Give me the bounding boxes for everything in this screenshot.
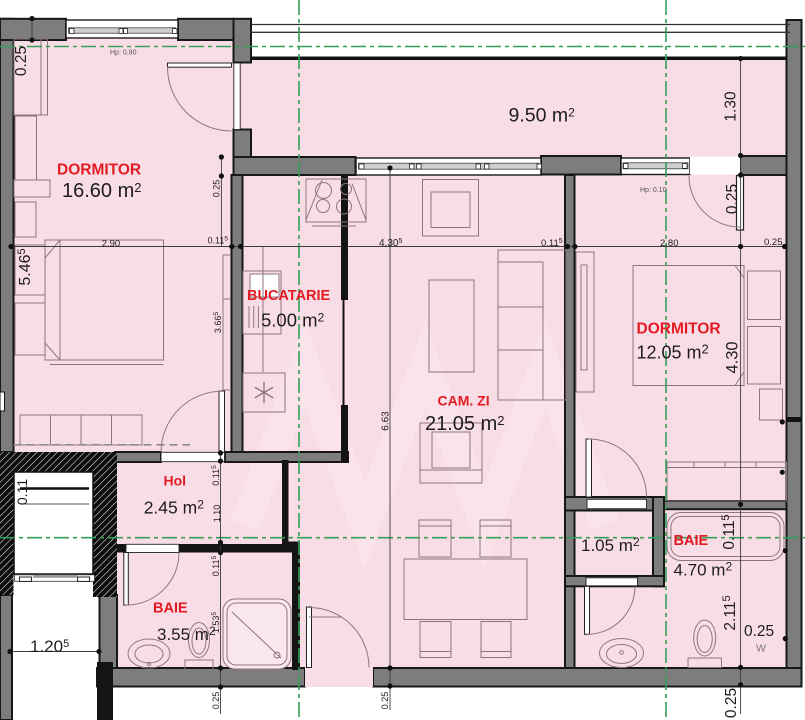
svg-text:6.63: 6.63 [381, 411, 392, 431]
svg-text:4.70 m2: 4.70 m2 [674, 560, 733, 580]
svg-text:Hp: 0.10: Hp: 0.10 [640, 187, 667, 194]
svg-text:0.25: 0.25 [212, 180, 222, 198]
svg-text:BAIE: BAIE [153, 601, 188, 617]
svg-text:BUCATARIE: BUCATARIE [247, 288, 331, 304]
svg-text:1.05 m2: 1.05 m2 [581, 535, 640, 555]
svg-text:0.25: 0.25 [211, 692, 221, 710]
svg-text:0.11: 0.11 [14, 479, 30, 505]
svg-text:DORMITOR: DORMITOR [57, 162, 141, 179]
svg-text:5.00 m2: 5.00 m2 [261, 310, 325, 331]
svg-text:0.25: 0.25 [13, 46, 30, 76]
svg-text:9.50 m2: 9.50 m2 [509, 105, 576, 127]
svg-text:1.30: 1.30 [723, 91, 740, 122]
svg-text:Hol: Hol [164, 473, 187, 489]
svg-text:12.05 m2: 12.05 m2 [637, 342, 709, 363]
svg-text:0.25: 0.25 [380, 692, 390, 710]
svg-text:21.05 m2: 21.05 m2 [425, 413, 505, 435]
svg-text:2.80: 2.80 [660, 238, 679, 249]
svg-text:CAM. ZI: CAM. ZI [438, 393, 490, 409]
svg-text:16.60 m2: 16.60 m2 [62, 180, 142, 202]
svg-text:2.90: 2.90 [102, 239, 121, 250]
svg-text:0.25: 0.25 [744, 623, 774, 640]
svg-text:0.25: 0.25 [764, 237, 783, 248]
svg-text:0.25: 0.25 [723, 688, 740, 718]
svg-text:1.10: 1.10 [212, 505, 222, 523]
svg-text:3.55 m2: 3.55 m2 [157, 624, 216, 644]
svg-text:W: W [756, 643, 766, 655]
svg-text:Hp: 0.90: Hp: 0.90 [110, 50, 137, 57]
svg-text:0.25: 0.25 [724, 184, 741, 214]
svg-text:2.45 m2: 2.45 m2 [144, 498, 205, 518]
svg-text:4.30: 4.30 [724, 341, 742, 373]
svg-text:BAIE: BAIE [674, 533, 709, 549]
svg-text:DORMITOR: DORMITOR [637, 321, 721, 338]
